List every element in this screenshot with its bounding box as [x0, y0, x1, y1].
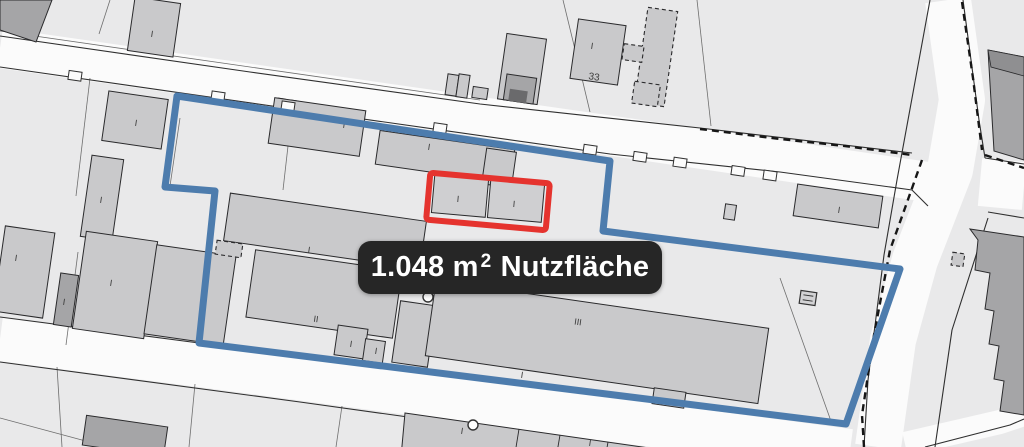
- building-footprint: [472, 86, 488, 99]
- area-label-text: 1.048 m2 Nutzfläche: [371, 251, 650, 284]
- building-footprint: [144, 245, 236, 345]
- boundary-point-marker: [468, 420, 478, 430]
- cadastral-map: I I 33 I I I I I I I I I I II I I III I …: [0, 0, 1024, 447]
- house-number-label: 33: [588, 71, 601, 84]
- cadastral-map-view: I I 33 I I I I I I I I I I II I I III I …: [0, 0, 1024, 447]
- building-footprint: [72, 231, 157, 338]
- road-branch-east: [980, 182, 1024, 186]
- storey-label: III: [574, 317, 583, 328]
- building-footprint: [508, 89, 528, 103]
- building-annex-dashed: [951, 252, 965, 267]
- area-suffix: Nutzfläche: [492, 251, 649, 283]
- area-unit-superscript: 2: [481, 251, 492, 273]
- building-footprint: [723, 204, 736, 220]
- utility-symbol: [799, 290, 817, 305]
- building-footprint-highlighted: [431, 175, 488, 218]
- building-footprint-highlighted: [487, 180, 544, 223]
- area-value: 1.048 m: [371, 251, 479, 283]
- area-label-badge: 1.048 m2 Nutzfläche: [358, 241, 662, 294]
